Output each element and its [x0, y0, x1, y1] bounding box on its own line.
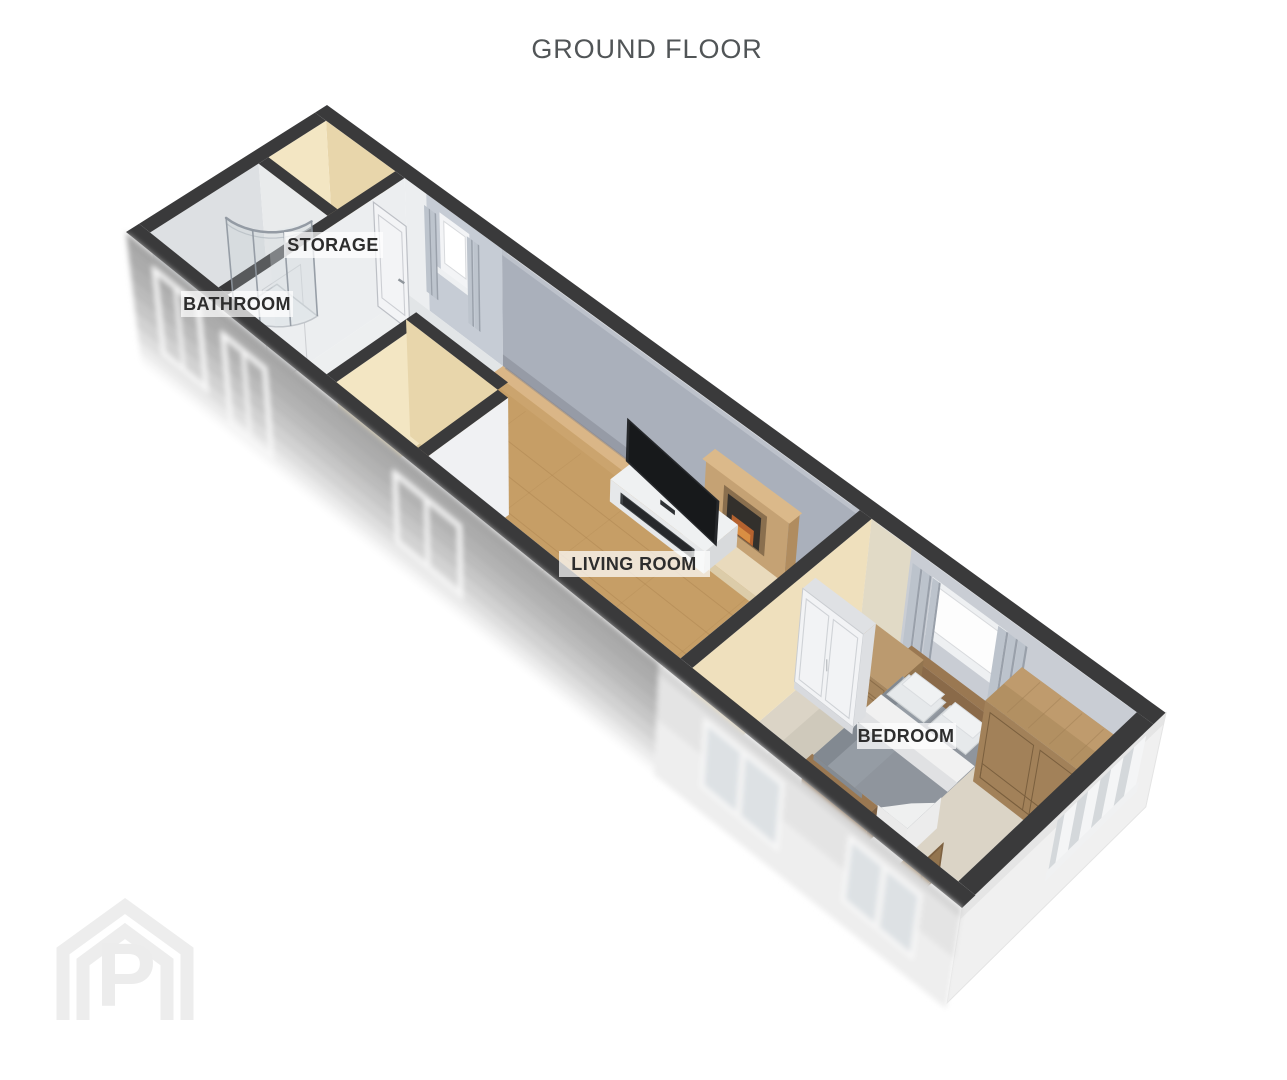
- svg-text:BATHROOM: BATHROOM: [183, 294, 291, 314]
- svg-text:LIVING ROOM: LIVING ROOM: [571, 554, 696, 574]
- svg-text:BEDROOM: BEDROOM: [858, 726, 955, 746]
- svg-text:P: P: [96, 926, 156, 1026]
- svg-text:GROUND FLOOR: GROUND FLOOR: [531, 34, 762, 64]
- svg-text:STORAGE: STORAGE: [287, 235, 378, 255]
